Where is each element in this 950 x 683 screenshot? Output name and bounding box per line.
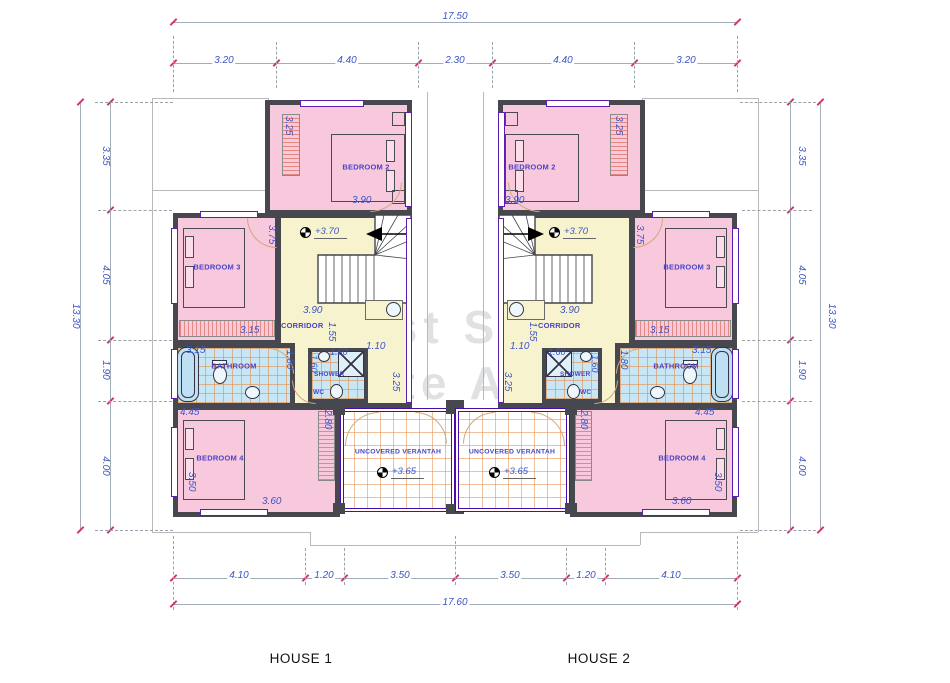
bedroom2-side-dim: 3.25 bbox=[613, 116, 623, 135]
house2-label: HOUSE 2 bbox=[568, 651, 631, 666]
shower-depth-dim: 1.60 bbox=[309, 355, 318, 373]
bedroom3-width-dim: 3.15 bbox=[240, 326, 259, 336]
witness-line bbox=[276, 42, 277, 88]
witness-line bbox=[605, 548, 606, 585]
window bbox=[200, 211, 258, 218]
dim-bottom-seg: 1.20 bbox=[312, 571, 335, 581]
bedroom4-bottom-dim: 3.60 bbox=[672, 497, 691, 507]
bathroom-label: BATHROOM bbox=[653, 362, 698, 371]
bedroom2-label: BEDROOM 2 bbox=[508, 163, 555, 172]
dim-bottom-seg: 3.50 bbox=[498, 571, 521, 581]
dim-line-right-overall bbox=[820, 102, 821, 530]
dim-line-top-overall bbox=[173, 22, 737, 23]
window bbox=[652, 211, 710, 218]
bedroom3-door-dim: 3.75 bbox=[634, 225, 644, 244]
witness-line bbox=[344, 548, 345, 585]
window bbox=[406, 218, 412, 403]
bedroom2-label: BEDROOM 2 bbox=[342, 163, 389, 172]
corridor-label: CORRIDOR bbox=[281, 321, 323, 330]
toilet-icon bbox=[330, 384, 343, 399]
bedroom3-door-dim: 3.75 bbox=[266, 225, 276, 244]
pillow-icon bbox=[185, 428, 194, 450]
dim-right-seg: 1.90 bbox=[796, 360, 806, 379]
window bbox=[405, 112, 412, 207]
window bbox=[300, 100, 364, 107]
nightstand-icon bbox=[392, 112, 405, 126]
bedroom4-right-dim: 2.80 bbox=[578, 410, 588, 429]
dim-left-seg: 4.00 bbox=[100, 456, 110, 475]
shower-depth-dim: 1.60 bbox=[590, 355, 599, 373]
corridor-length-dim: 1.55 bbox=[326, 322, 336, 341]
window bbox=[171, 427, 178, 497]
bedroom2-side-dim: 3.25 bbox=[283, 116, 293, 135]
dim-top-seg: 2.30 bbox=[443, 56, 466, 66]
dim-top-seg: 4.40 bbox=[551, 56, 574, 66]
witness-line bbox=[740, 530, 816, 531]
dim-right-seg: 4.00 bbox=[796, 456, 806, 475]
witness-line bbox=[634, 42, 635, 88]
bedroom4-top-dim: 4.45 bbox=[695, 408, 714, 418]
level-value: +3.65 bbox=[391, 466, 424, 479]
wall-stub bbox=[333, 402, 345, 415]
property-line bbox=[310, 545, 640, 546]
wc-label: WC bbox=[313, 389, 324, 396]
pillow-icon bbox=[185, 236, 194, 258]
property-line bbox=[152, 98, 268, 99]
wardrobe bbox=[179, 320, 275, 337]
window bbox=[171, 228, 178, 304]
bedroom3-width-dim: 3.15 bbox=[650, 326, 669, 336]
corridor-length-dim: 1.55 bbox=[527, 322, 537, 341]
dim-bottom-overall: 17.60 bbox=[440, 598, 469, 608]
witness-line bbox=[98, 401, 172, 402]
pillow-icon bbox=[515, 140, 524, 162]
wall-stub bbox=[565, 402, 577, 415]
bedroom2-width-dim: 3.90 bbox=[352, 196, 371, 206]
level-marker: +3.65 bbox=[489, 466, 536, 479]
shower-width-dim: 1.60 bbox=[548, 348, 566, 357]
shower-label: SHOWER bbox=[560, 371, 590, 378]
dim-top-overall: 17.50 bbox=[442, 12, 467, 22]
property-line bbox=[640, 532, 641, 545]
floor-plan: Fast Smart Estate Agency 17.50 3.20 4.40… bbox=[0, 0, 950, 683]
corridor-door-dim: 3.25 bbox=[502, 372, 512, 391]
dim-right-seg: 3.35 bbox=[796, 146, 806, 165]
witness-line bbox=[737, 36, 738, 92]
bathroom-height-dim: 1.80 bbox=[284, 350, 294, 369]
dim-left-seg: 4.05 bbox=[100, 265, 110, 284]
corridor-label: CORRIDOR bbox=[538, 321, 580, 330]
boiler-icon bbox=[386, 302, 401, 317]
witness-line bbox=[95, 530, 173, 531]
bedroom4-right-dim: 2.80 bbox=[322, 410, 332, 429]
bedroom3-label: BEDROOM 3 bbox=[663, 263, 710, 272]
window bbox=[642, 509, 710, 516]
sink-icon bbox=[650, 386, 665, 399]
property-line bbox=[152, 190, 268, 191]
window bbox=[200, 509, 268, 516]
stair-dim: 3.90 bbox=[303, 306, 322, 316]
corridor-width-dim: 1.10 bbox=[510, 342, 529, 352]
dim-left-seg: 1.90 bbox=[100, 360, 110, 379]
dim-tick bbox=[817, 526, 825, 534]
bedroom4-label: BEDROOM 4 bbox=[658, 454, 705, 463]
bedroom2-width-dim: 3.90 bbox=[505, 196, 524, 206]
property-line bbox=[642, 98, 758, 99]
dim-line-right-segments bbox=[790, 102, 791, 530]
property-line bbox=[152, 98, 153, 532]
property-line bbox=[152, 532, 310, 533]
witness-line bbox=[173, 36, 174, 92]
bedroom4-label: BEDROOM 4 bbox=[196, 454, 243, 463]
witness-line bbox=[455, 536, 456, 585]
witness-line bbox=[95, 102, 173, 103]
bathroom-width-dim: 3.15 bbox=[692, 346, 711, 356]
level-value: +3.70 bbox=[563, 226, 596, 239]
toilet-icon bbox=[567, 384, 580, 399]
witness-line bbox=[566, 548, 567, 585]
wall-stub bbox=[565, 503, 577, 514]
level-marker-icon bbox=[377, 467, 388, 478]
property-line bbox=[642, 190, 758, 191]
witness-line bbox=[737, 536, 738, 610]
corridor-width-dim: 1.10 bbox=[366, 342, 385, 352]
bedroom4-top-dim: 4.45 bbox=[180, 408, 199, 418]
level-value: +3.70 bbox=[314, 226, 347, 239]
dim-bottom-seg: 1.20 bbox=[574, 571, 597, 581]
pillow-icon bbox=[716, 236, 725, 258]
level-marker-icon bbox=[549, 227, 560, 238]
level-marker: +3.70 bbox=[300, 226, 347, 239]
level-marker-icon bbox=[489, 467, 500, 478]
watermark-line1: Fast Smart bbox=[0, 300, 950, 354]
boiler-icon bbox=[509, 302, 524, 317]
level-marker: +3.65 bbox=[377, 466, 424, 479]
witness-line bbox=[492, 42, 493, 88]
witness-line bbox=[418, 42, 419, 88]
level-marker: +3.70 bbox=[549, 226, 596, 239]
dim-left-overall: 13.30 bbox=[70, 303, 80, 328]
witness-line bbox=[742, 401, 812, 402]
window bbox=[732, 228, 739, 304]
witness-line bbox=[305, 548, 306, 585]
sink-icon bbox=[318, 351, 330, 362]
dim-right-overall: 13.30 bbox=[826, 303, 836, 328]
dim-left-seg: 3.35 bbox=[100, 146, 110, 165]
witness-line bbox=[740, 102, 816, 103]
witness-line bbox=[98, 340, 172, 341]
dim-tick bbox=[77, 526, 85, 534]
dim-tick bbox=[734, 18, 742, 26]
witness-line bbox=[742, 340, 812, 341]
bedroom4-left-dim: 3.50 bbox=[186, 472, 196, 491]
window bbox=[171, 349, 178, 399]
pillow-icon bbox=[386, 140, 395, 162]
dim-right-seg: 4.05 bbox=[796, 265, 806, 284]
house1-label: HOUSE 1 bbox=[270, 651, 333, 666]
level-marker-icon bbox=[300, 227, 311, 238]
dim-top-seg: 3.20 bbox=[212, 56, 235, 66]
veranda-label: UNCOVERED VERANTAH bbox=[469, 449, 555, 456]
bathroom-width-dim: 3.15 bbox=[186, 346, 205, 356]
level-value: +3.65 bbox=[503, 466, 536, 479]
dim-bottom-seg: 3.50 bbox=[388, 571, 411, 581]
wc-label: WC bbox=[580, 389, 591, 396]
nightstand-icon bbox=[505, 112, 518, 126]
pillow-icon bbox=[716, 428, 725, 450]
witness-line bbox=[742, 210, 812, 211]
dim-bottom-seg: 4.10 bbox=[227, 571, 250, 581]
window bbox=[546, 100, 610, 107]
property-line bbox=[427, 92, 428, 400]
witness-line bbox=[173, 536, 174, 610]
shower-width-dim: 1.60 bbox=[330, 348, 348, 357]
dim-top-seg: 3.20 bbox=[674, 56, 697, 66]
corridor-door-dim: 3.25 bbox=[390, 372, 400, 391]
property-line bbox=[758, 98, 759, 532]
wall-stub bbox=[333, 503, 345, 514]
property-line bbox=[640, 532, 758, 533]
bedroom4-left-dim: 3.50 bbox=[712, 472, 722, 491]
window bbox=[732, 349, 739, 399]
bathroom-height-dim: 1.80 bbox=[618, 350, 628, 369]
witness-line bbox=[98, 210, 172, 211]
bathroom-label: BATHROOM bbox=[211, 362, 256, 371]
pillow-icon bbox=[716, 266, 725, 288]
bedroom4-bottom-dim: 3.60 bbox=[262, 497, 281, 507]
property-line bbox=[483, 92, 484, 400]
dim-bottom-seg: 4.10 bbox=[659, 571, 682, 581]
window bbox=[498, 112, 505, 207]
dim-top-seg: 4.40 bbox=[335, 56, 358, 66]
bathtub-icon bbox=[711, 347, 733, 402]
stair-dim: 3.90 bbox=[560, 306, 579, 316]
veranda-label: UNCOVERED VERANTAH bbox=[355, 449, 441, 456]
window bbox=[732, 427, 739, 497]
bedroom3-label: BEDROOM 3 bbox=[193, 263, 240, 272]
property-line bbox=[310, 532, 311, 545]
sink-icon bbox=[245, 386, 260, 399]
